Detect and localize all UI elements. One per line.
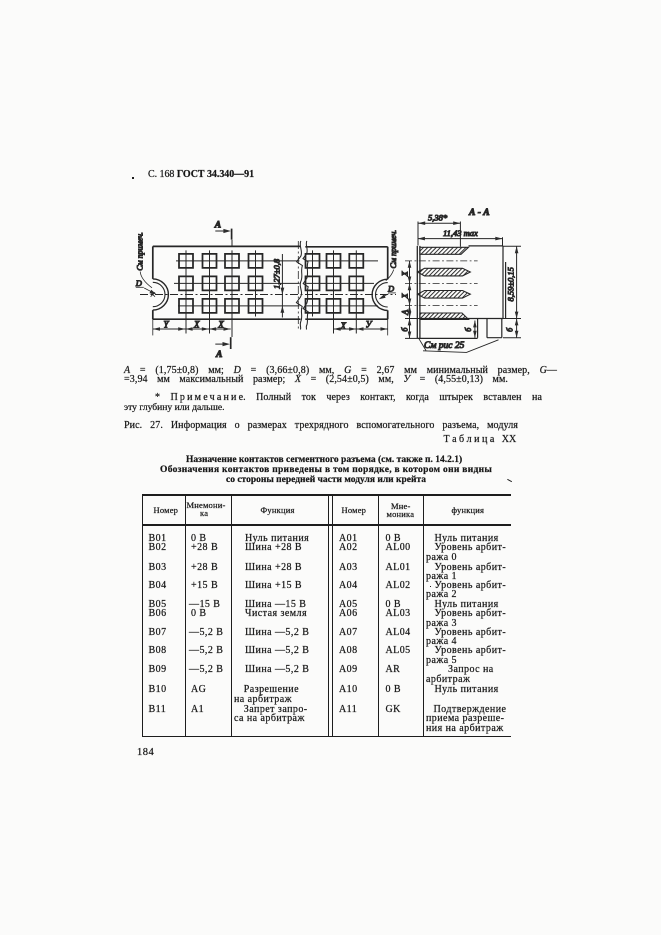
svg-text:X: X — [400, 292, 409, 299]
svg-text:X: X — [217, 319, 224, 329]
svg-text:11,43 max: 11,43 max — [443, 228, 478, 238]
svg-text:б: б — [506, 327, 515, 332]
svg-text:D: D — [135, 278, 143, 288]
svg-text:5,38*: 5,38* — [428, 213, 448, 223]
svg-text:б: б — [400, 327, 409, 332]
svg-text:8,59±0,15: 8,59±0,15 — [505, 267, 515, 301]
svg-text:X: X — [340, 321, 347, 331]
svg-text:D: D — [387, 284, 395, 294]
svg-text:А: А — [400, 310, 409, 316]
svg-text:1,27±0,8: 1,27±0,8 — [272, 258, 282, 289]
svg-text:б: б — [464, 327, 473, 332]
svg-text:А: А — [214, 220, 221, 230]
svg-text:А - А: А - А — [468, 208, 490, 218]
svg-text:См примеч.: См примеч. — [135, 232, 144, 271]
svg-text:См рис 25: См рис 25 — [424, 341, 465, 351]
svg-text:См примеч.: См примеч. — [389, 230, 398, 269]
svg-text:Y: Y — [164, 319, 170, 329]
svg-text:А: А — [215, 350, 222, 360]
svg-text:X: X — [400, 270, 409, 277]
svg-text:X: X — [193, 320, 200, 330]
svg-text:У: У — [366, 320, 373, 330]
